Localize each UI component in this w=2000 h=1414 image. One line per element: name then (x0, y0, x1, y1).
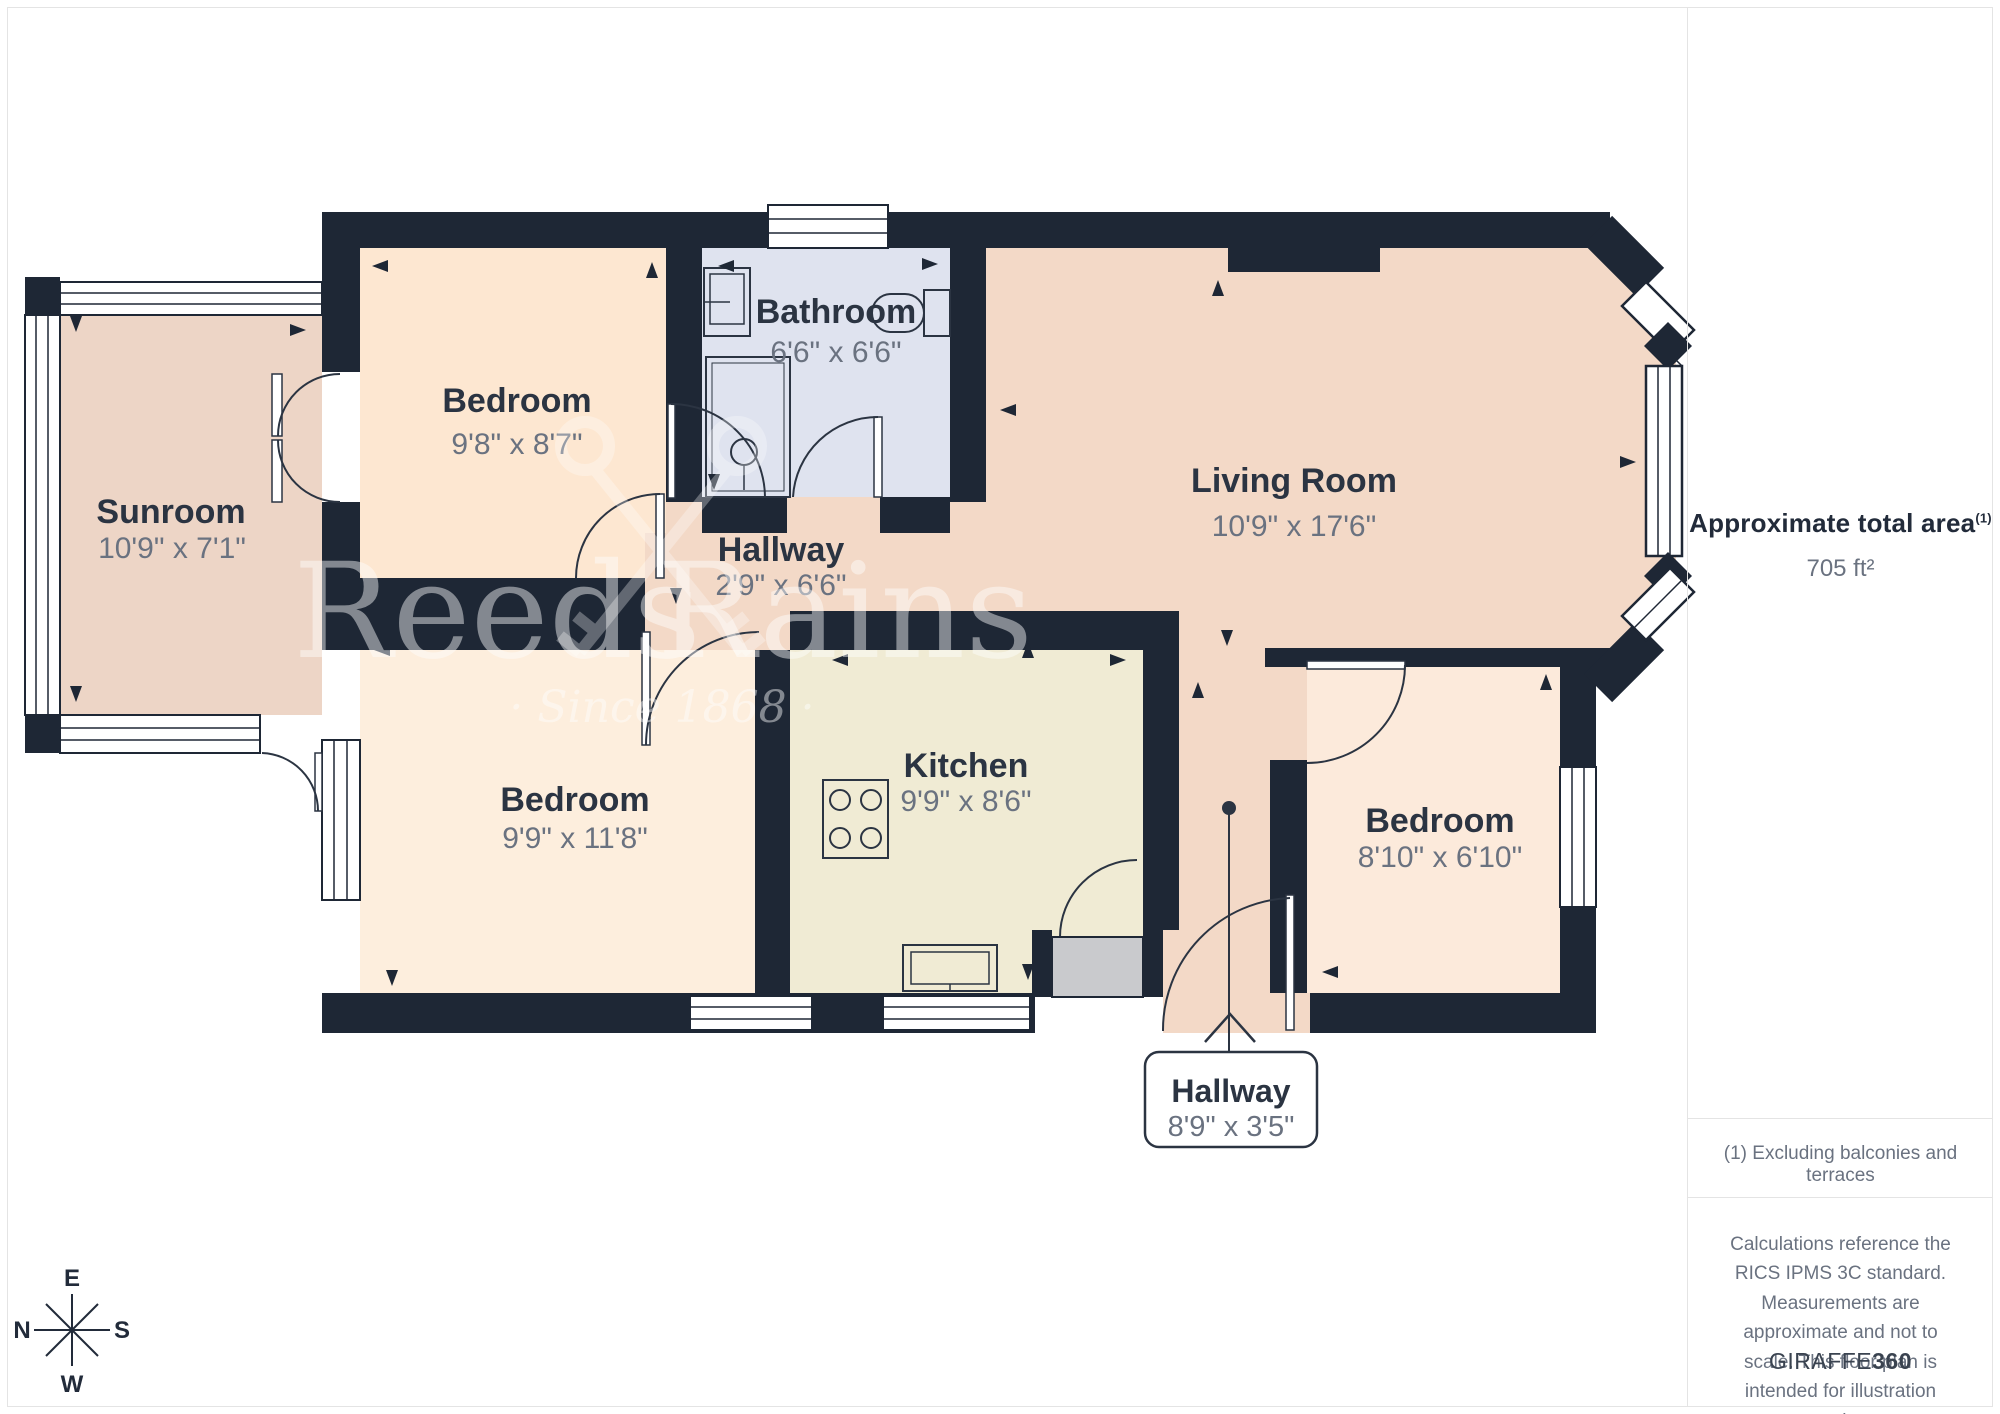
sunroom-window-bottom (60, 715, 260, 753)
floorplan-page: Sunroom 10'9" x 7'1" Bedroom 9'8" x 8'7"… (0, 0, 2000, 1414)
sunroom-window-left (25, 315, 60, 715)
bathroom-dims: 6'6" x 6'6" (770, 336, 901, 369)
bedroom-bl-dims: 9'9" x 11'8" (502, 822, 648, 855)
bedroom-bl-label: Bedroom (500, 781, 649, 819)
compass-rose: E W N S (13, 1265, 130, 1398)
total-area-value: 705 ft² (1688, 555, 1993, 583)
bedroom-br-dims: 8'10" x 6'10" (1358, 841, 1523, 874)
sunroom-dims: 10'9" x 7'1" (98, 532, 246, 565)
porch-block-right (1143, 930, 1163, 997)
bath-door-threshold (787, 497, 880, 533)
french-door-leaf-lower (272, 440, 282, 502)
bedroom-br-window-east (1560, 767, 1596, 907)
wall-kitchen-east (1143, 611, 1179, 930)
living-room-label: Living Room (1191, 462, 1397, 500)
watermark-word1: Reeds (293, 535, 701, 689)
total-area-title: Approximate total area(1) (1688, 508, 1993, 539)
front-door-leaf (1286, 895, 1294, 1030)
wall-chimney-breast (1228, 248, 1380, 272)
compass-north-label: N (13, 1317, 30, 1344)
bedroom-bl-window-west (322, 740, 360, 900)
total-area-footnote-mark: (1) (1975, 510, 1992, 525)
bedroom-tl-label: Bedroom (442, 382, 591, 420)
hallway-bottom-label: Hallway (1171, 1073, 1290, 1109)
total-area-block: Approximate total area(1) 705 ft² (1688, 508, 1993, 583)
sidebar-divider (1688, 1118, 1993, 1119)
bathroom-floor (702, 248, 950, 497)
wall-top (322, 212, 1610, 248)
wall-bath-south-b (880, 497, 950, 533)
info-sidebar: Approximate total area(1) 705 ft² (1) Ex… (1687, 8, 1993, 1407)
bedroom-br-door-leaf (1307, 661, 1405, 669)
wall-bottom-right (1310, 993, 1596, 1033)
sidebar-divider (1688, 1197, 1993, 1198)
bathroom-door-leaf (874, 417, 882, 497)
compass-east-label: E (64, 1265, 80, 1292)
sunroom-label: Sunroom (96, 493, 245, 531)
wall-bedbr-east-a (1560, 648, 1596, 767)
watermark-word2: Rains (657, 535, 1033, 689)
sunroom-post-bl (25, 715, 60, 753)
bathroom-label: Bathroom (756, 293, 917, 331)
bedroom-bl-window-south (690, 996, 812, 1030)
sidebar-disclaimer: Calculations reference the RICS IPMS 3C … (1724, 1230, 1957, 1414)
compass-star (34, 1294, 110, 1366)
shower-door-leaf (668, 404, 675, 498)
french-door-leaf-upper (272, 374, 282, 436)
brand-giraffe: GIRAFFE (1769, 1348, 1872, 1374)
bathroom-window-top (768, 205, 888, 248)
garden-door-arc (262, 753, 318, 811)
sunroom-post-tl (25, 277, 60, 315)
garden-door-leaf (315, 753, 322, 811)
wall-bath-east (950, 248, 986, 502)
hallway-bottom-dims: 8'9" x 3'5" (1168, 1111, 1295, 1143)
sidebar-footnote: (1) Excluding balconies and terraces (1688, 1143, 1993, 1187)
wall-bath-south-a (702, 497, 787, 533)
kitchen-label: Kitchen (904, 747, 1029, 785)
wall-bedbr-east-b (1560, 907, 1596, 1007)
brand-logo: GIRAFFE360 (1688, 1348, 1993, 1375)
wall-left-upper (322, 212, 360, 372)
compass-west-label: W (61, 1371, 84, 1398)
kitchen-dims: 9'9" x 8'6" (900, 785, 1031, 818)
porch-block-left (1032, 930, 1052, 997)
brand-360: 360 (1872, 1348, 1912, 1374)
kitchen-window-south (883, 996, 1030, 1030)
total-area-label: Approximate total area (1689, 508, 1975, 538)
bay-window-middle (1646, 366, 1682, 556)
watermark-tagline: · Since 1868 · (509, 682, 814, 733)
wall-bedbr-stub (1270, 648, 1307, 667)
sunroom-window-top (60, 282, 322, 315)
entry-porch-step (1052, 937, 1143, 997)
bedroom-br-label: Bedroom (1365, 802, 1514, 840)
compass-south-label: S (114, 1317, 130, 1344)
living-room-dims: 10'9" x 17'6" (1212, 510, 1377, 543)
